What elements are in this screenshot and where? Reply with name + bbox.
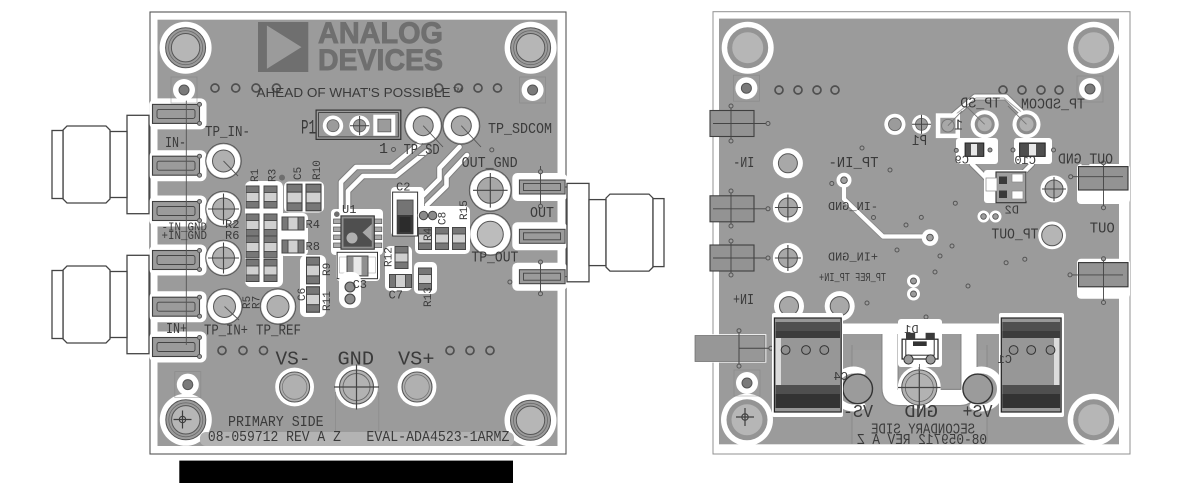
svg-text:+IN_GND: +IN_GND	[162, 229, 208, 243]
svg-text:TP_SD: TP_SD	[404, 142, 440, 159]
svg-text:IN-: IN-	[165, 135, 186, 152]
svg-text:OUT_GND: OUT_GND	[1058, 152, 1113, 169]
svg-text:TP_SDCOM: TP_SDCOM	[488, 121, 552, 138]
svg-text:IN-: IN-	[733, 155, 754, 172]
svg-text:OUT_GND: OUT_GND	[462, 155, 518, 172]
svg-text:R11: R11	[322, 291, 334, 311]
svg-text:TP_SD: TP_SD	[960, 96, 1000, 113]
svg-text:C2: C2	[396, 181, 410, 195]
svg-text:VS-: VS-	[843, 403, 873, 423]
svg-text:TP_IN-: TP_IN-	[205, 124, 250, 141]
svg-text:C8: C8	[438, 212, 450, 225]
svg-text:D1: D1	[904, 323, 918, 337]
svg-text:VS+: VS+	[963, 403, 993, 423]
svg-text:OUT: OUT	[530, 205, 554, 222]
svg-text:TP_OUT: TP_OUT	[471, 250, 518, 267]
svg-text:GND: GND	[338, 349, 375, 371]
svg-text:TP_OUT: TP_OUT	[991, 227, 1038, 244]
svg-text:TM: TM	[453, 87, 462, 94]
svg-text:U1: U1	[342, 203, 356, 217]
svg-text:C6: C6	[297, 288, 309, 301]
svg-text:R6: R6	[225, 229, 239, 243]
svg-text:08-059712 REV A Z: 08-059712 REV A Z	[857, 432, 987, 449]
svg-text:-IN_GND: -IN_GND	[828, 200, 878, 214]
svg-text:C7: C7	[389, 289, 403, 303]
svg-text:R1: R1	[250, 168, 262, 182]
svg-text:TP_IN-: TP_IN-	[829, 155, 879, 172]
svg-text:R8: R8	[306, 240, 320, 254]
svg-text:1: 1	[954, 118, 963, 135]
svg-text:TP_REF TP_IN+: TP_REF TP_IN+	[819, 271, 886, 285]
svg-text:AHEAD OF WHAT'S POSSIBLE: AHEAD OF WHAT'S POSSIBLE	[257, 85, 451, 100]
svg-text:P1: P1	[912, 133, 927, 150]
svg-text:DEVICES: DEVICES	[318, 44, 443, 77]
svg-text:R13: R13	[423, 287, 435, 307]
svg-text:C10: C10	[1014, 154, 1036, 168]
svg-text:VS-: VS-	[276, 349, 311, 371]
svg-text:+IN_GND: +IN_GND	[828, 251, 878, 265]
svg-text:IN+: IN+	[166, 321, 187, 338]
svg-text:EVAL-ADA4523-1ARMZ: EVAL-ADA4523-1ARMZ	[366, 429, 509, 446]
svg-text:C4: C4	[834, 370, 848, 384]
svg-text:IN+: IN+	[733, 292, 754, 309]
svg-text:C3: C3	[353, 278, 367, 292]
svg-text:R7: R7	[252, 296, 264, 309]
svg-text:08-059712 REV A Z: 08-059712 REV A Z	[208, 429, 341, 446]
svg-text:R4: R4	[306, 218, 320, 232]
svg-text:GND: GND	[905, 403, 939, 423]
svg-text:C5: C5	[293, 167, 305, 180]
svg-text:R10: R10	[312, 160, 324, 180]
svg-text:C1: C1	[998, 353, 1012, 367]
svg-text:TP_IN+: TP_IN+	[204, 323, 248, 340]
svg-text:TP_SDCOM: TP_SDCOM	[1021, 97, 1085, 114]
svg-text:R4: R4	[423, 227, 435, 241]
svg-text:TP_REF: TP_REF	[256, 323, 301, 340]
svg-text:D2: D2	[1005, 204, 1019, 218]
svg-text:C9: C9	[955, 154, 969, 168]
svg-text:1: 1	[379, 141, 388, 158]
svg-text:R12: R12	[384, 247, 396, 267]
svg-text:OUT: OUT	[1090, 221, 1115, 238]
svg-text:R15: R15	[459, 200, 471, 220]
svg-text:R9: R9	[322, 263, 334, 276]
svg-text:P1: P1	[301, 118, 316, 141]
svg-text:VS+: VS+	[398, 349, 435, 371]
svg-text:R3: R3	[268, 169, 280, 182]
